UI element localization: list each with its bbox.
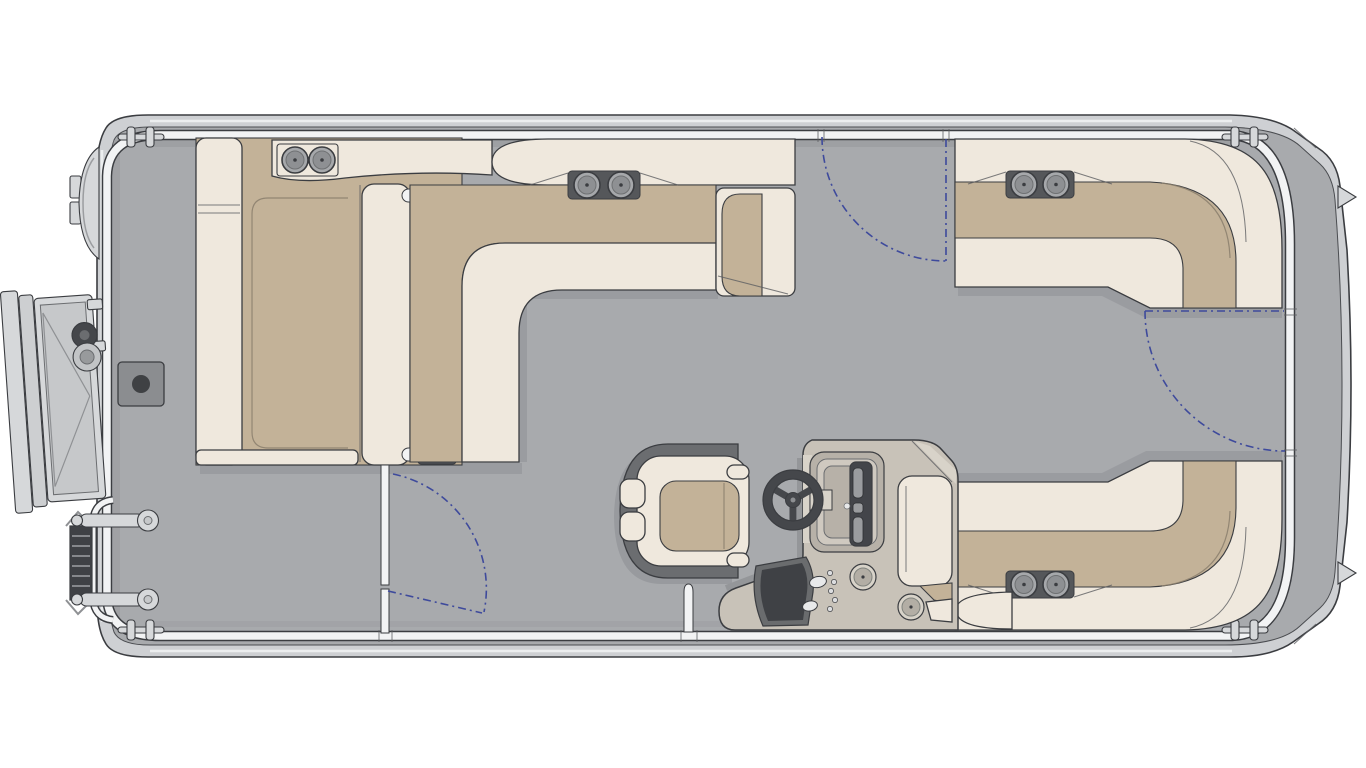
headrest-pad	[620, 512, 645, 541]
gate-partition	[381, 465, 389, 585]
bow-spray-fin-bottom	[1338, 562, 1356, 584]
bow-port-l-lounge	[955, 139, 1282, 318]
cup-holder	[282, 147, 308, 173]
cup-holder	[608, 172, 634, 198]
headrest-pad	[620, 479, 645, 508]
outboard-motor	[70, 147, 99, 259]
captain-chair	[614, 444, 749, 584]
pontoon-floor-plan	[0, 0, 1366, 768]
flip-backrest	[362, 184, 410, 465]
bow-spray-fin-top	[1338, 186, 1356, 208]
cup-holder	[309, 147, 335, 173]
table-pedestal-base	[118, 362, 164, 406]
fence-gate-post	[684, 584, 693, 632]
gauge-speaker	[850, 564, 876, 590]
bench-backrest	[492, 139, 795, 185]
gauge-speaker	[898, 594, 924, 620]
cup-holder	[574, 172, 600, 198]
